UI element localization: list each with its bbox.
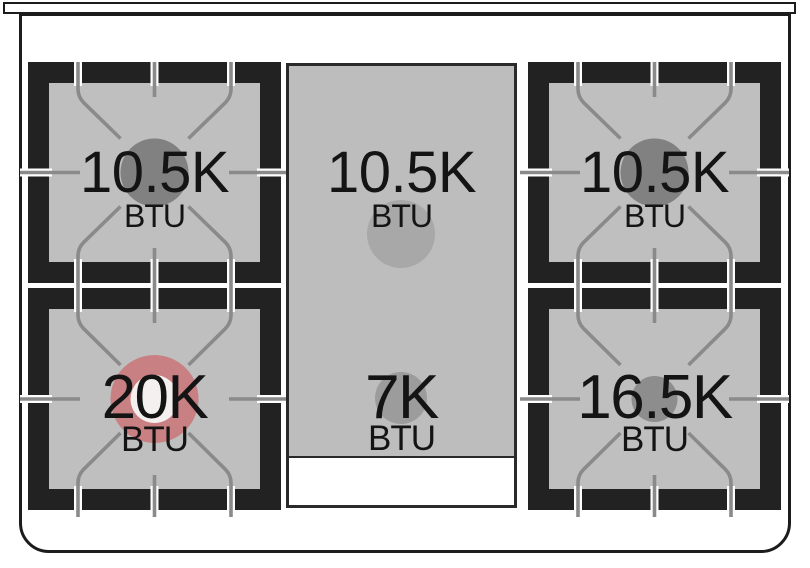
burner-front-left: 20K BTU (28, 288, 281, 510)
burner-btu-unit: BTU (28, 200, 281, 232)
burner-btu-unit: BTU (289, 421, 514, 456)
burner-front-right: 16.5K BTU (528, 288, 781, 510)
burner-btu-unit: BTU (289, 200, 514, 232)
burner-rear-left: 10.5K BTU (28, 62, 281, 283)
burner-btu-value: 10.5K (528, 144, 781, 202)
cooktop-diagram: 10.5K BTU 10.5K BTU 20K BTU 16.5K BTU 10… (0, 0, 810, 568)
burner-btu-value: 10.5K (289, 144, 514, 202)
burner-btu-value: 10.5K (28, 144, 281, 202)
burner-btu-unit: BTU (528, 422, 781, 457)
griddle-drip-tray (289, 456, 514, 505)
burner-btu-unit: BTU (28, 422, 281, 457)
burner-rear-right: 10.5K BTU (528, 62, 781, 283)
burner-btu-unit: BTU (528, 200, 781, 232)
griddle-section: 10.5K BTU 7K BTU (286, 63, 517, 508)
